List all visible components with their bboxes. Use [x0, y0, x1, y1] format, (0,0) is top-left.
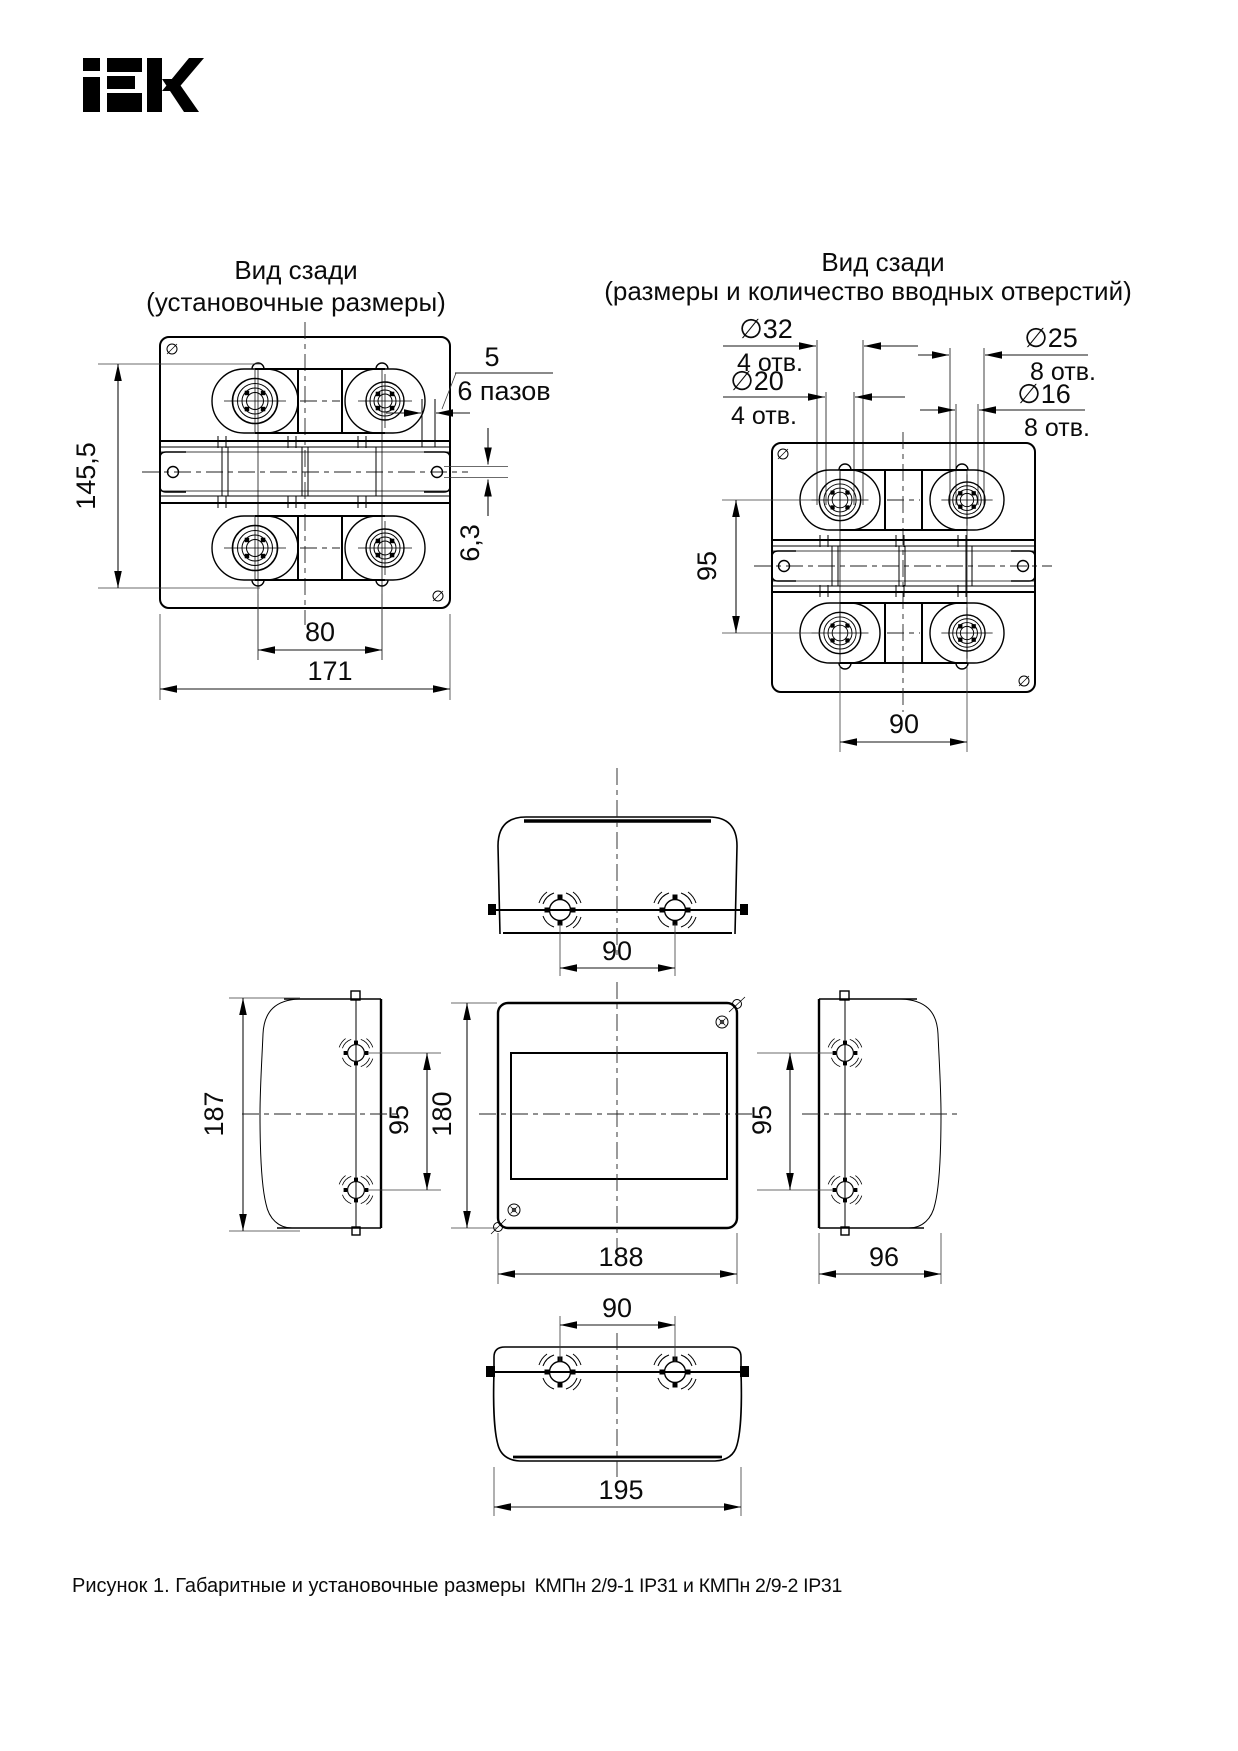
label-slot-count: 6 пазов: [457, 376, 550, 406]
hinge-tab: [740, 904, 748, 915]
front-window: [511, 1053, 727, 1179]
dim-hole-spacing-80: 80: [305, 617, 335, 647]
label-d20-qty: 4 отв.: [731, 402, 797, 430]
rear-install-title-1: Вид сзади: [234, 255, 357, 285]
dim-side-holes-95: 95: [747, 1105, 777, 1135]
top-view: 90: [488, 768, 748, 976]
dim-depth-96: 96: [869, 1242, 899, 1272]
dim-height-145-5: 145,5: [71, 442, 101, 510]
cable-knockout-icon: [224, 517, 286, 579]
dim-side-holes-95: 95: [384, 1105, 414, 1135]
label-d16: ∅16: [1017, 379, 1071, 409]
dim-front-width-188: 188: [598, 1242, 643, 1272]
dim-front-height-180: 180: [427, 1091, 457, 1136]
rear-install-view: Вид сзади (установочные размеры): [71, 255, 553, 700]
left-side-view: 187 95: [199, 991, 441, 1235]
hinge-tab: [488, 904, 496, 915]
drawing-page: IEK Вид сзади (установочные размеры): [0, 0, 1238, 1751]
bottom-view: 90 195: [486, 1293, 749, 1516]
label-d16-qty: 8 отв.: [1024, 414, 1090, 442]
side-profile: [260, 999, 299, 1228]
screw-head-icon: [716, 1016, 728, 1028]
dim-slot-depth-6-3: 6,3: [455, 524, 485, 562]
hinge-tab: [740, 1366, 749, 1377]
rear-holes-title-1: Вид сзади: [821, 247, 944, 277]
front-outline: [498, 1003, 737, 1228]
cable-knockout-icon: [811, 604, 868, 661]
cable-knockout-icon: [941, 474, 992, 525]
side-profile: [901, 999, 941, 1228]
cable-knockout-icon: [224, 370, 286, 432]
figure-caption: Рисунок 1. Габаритные и установочные раз…: [72, 1575, 842, 1597]
right-side-view: 95 96: [747, 991, 958, 1284]
dim-horizontal-90: 90: [889, 709, 919, 739]
bottom-outline: [494, 1347, 742, 1461]
hinge-tab: [486, 1366, 495, 1377]
caption-models-text: КМПн 2/9-1 IP31 и КМПн 2/9-2 IP31: [535, 1575, 842, 1597]
screw-head-icon: [508, 1204, 520, 1216]
caption-figure-text: Рисунок 1. Габаритные и установочные раз…: [72, 1575, 526, 1597]
label-d25: ∅25: [1024, 323, 1078, 353]
cable-knockout-icon: [941, 607, 992, 658]
dim-vertical-95: 95: [692, 551, 722, 581]
label-d32: ∅32: [739, 314, 793, 344]
dim-slot-width-5: 5: [484, 342, 499, 372]
dim-top-holes-90: 90: [602, 936, 632, 966]
dim-bottom-width-195: 195: [598, 1475, 643, 1505]
dim-side-height-187: 187: [199, 1091, 229, 1136]
top-outline: [498, 817, 737, 934]
dim-width-171: 171: [307, 656, 352, 686]
rear-install-title-2: (установочные размеры): [146, 287, 446, 317]
cable-knockout-icon: [811, 471, 868, 528]
rear-holes-title-2: (размеры и количество вводных отверстий): [604, 276, 1132, 306]
cable-knockout-icon: [358, 521, 412, 575]
dim-bottom-holes-90: 90: [602, 1293, 632, 1323]
cable-knockout-icon: [358, 374, 412, 428]
rear-holes-view: Вид сзади (размеры и количество вводных …: [604, 247, 1132, 752]
label-d20: ∅20: [730, 366, 784, 396]
front-view: 180 188: [427, 982, 757, 1284]
iek-logo: IEK: [83, 58, 204, 112]
